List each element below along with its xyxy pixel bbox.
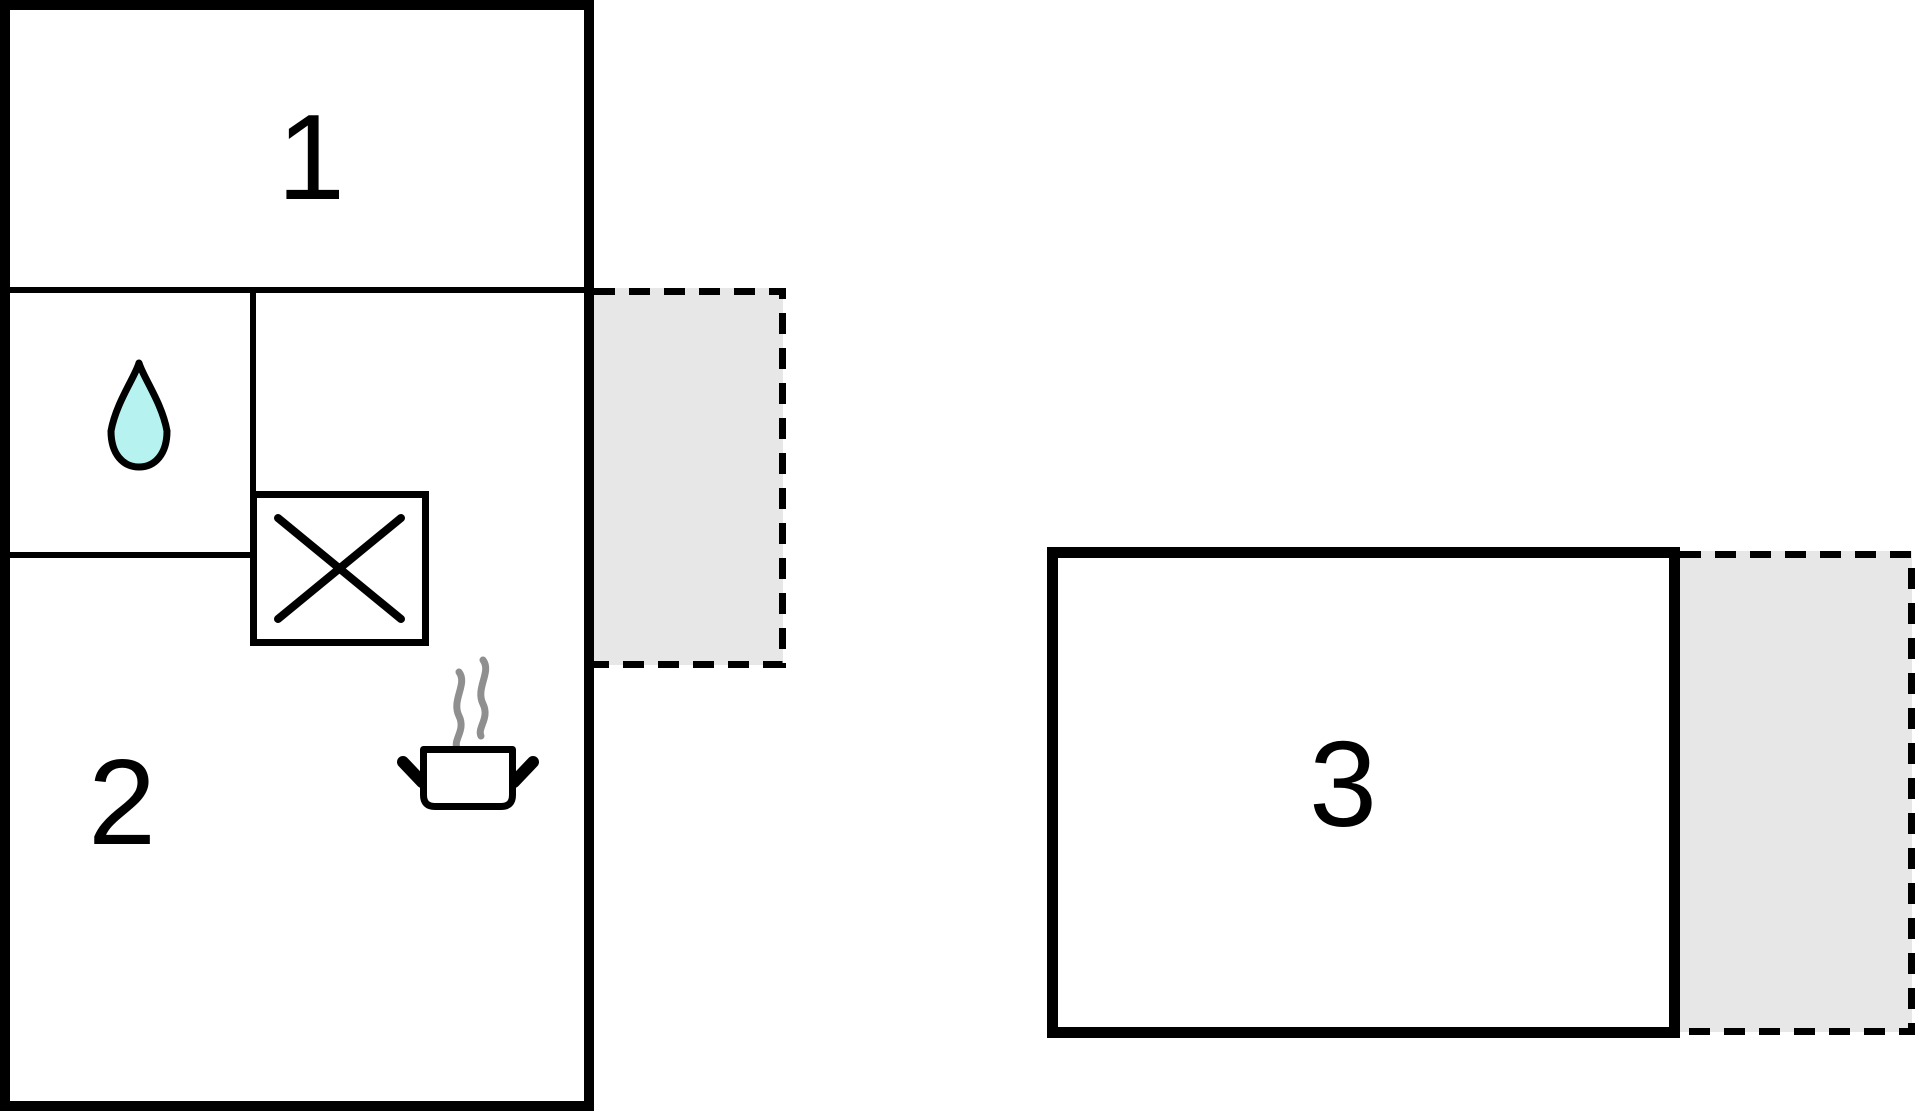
interior-wall-room1-divider: [10, 287, 584, 293]
building-3-outline: 3: [1047, 547, 1680, 1038]
interior-wall-bathroom-bottom: [10, 552, 253, 558]
water-drop-shape: [111, 363, 167, 467]
room-3-label: 3: [1309, 723, 1377, 845]
interior-wall-bathroom-right: [250, 287, 256, 501]
pot-handle-right: [514, 762, 533, 782]
terrace-1-dashed-area: [594, 288, 786, 668]
pot-body: [424, 750, 513, 807]
terrace-1-fill: [594, 288, 783, 665]
shower-x-icon: [250, 491, 429, 646]
steam-line-left: [456, 672, 461, 748]
floorplan-canvas: 1 2 3: [0, 0, 1920, 1111]
steaming-pot-icon: [390, 648, 545, 820]
room-1-label: 1: [277, 96, 345, 218]
steam-line-right: [480, 660, 485, 736]
room-2-label: 2: [88, 741, 156, 863]
water-drop-icon: [106, 357, 172, 471]
pot-handle-left: [403, 762, 422, 782]
terrace-2-dashed-area: [1680, 551, 1915, 1035]
building-1-outline: 1 2: [0, 0, 594, 1111]
terrace-2-fill: [1680, 551, 1912, 1032]
